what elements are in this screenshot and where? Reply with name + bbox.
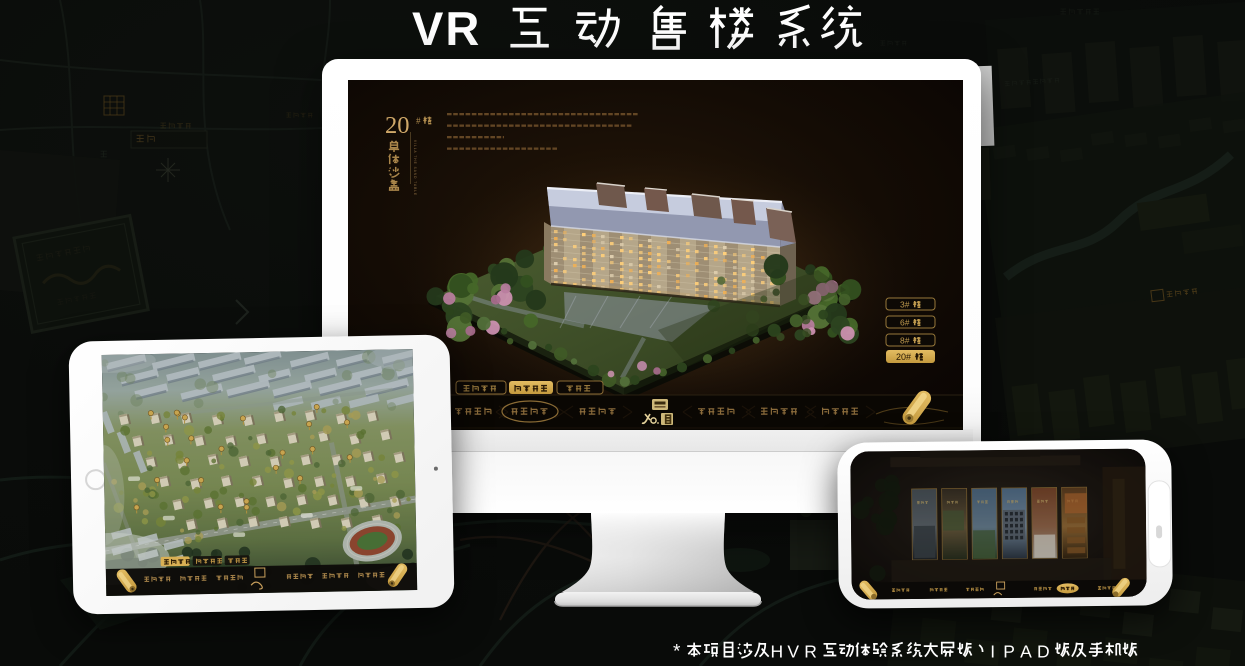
svg-text:3#: 3# <box>900 300 910 310</box>
svg-text:20#: 20# <box>896 352 911 362</box>
svg-text:A: A <box>1020 642 1032 662</box>
svg-text:H: H <box>771 642 784 662</box>
svg-text:D: D <box>1037 642 1050 662</box>
svg-text:8#: 8# <box>900 336 910 346</box>
svg-text:P: P <box>1003 642 1015 662</box>
svg-text:V: V <box>787 642 799 662</box>
svg-text:#: # <box>416 116 421 126</box>
svg-text:R: R <box>804 642 817 662</box>
svg-text:*: * <box>673 642 681 663</box>
svg-text:6#: 6# <box>900 318 910 328</box>
svg-text:I: I <box>990 642 995 662</box>
svg-text:20: 20 <box>385 112 410 139</box>
svg-text:VR: VR <box>412 2 481 55</box>
svg-text:VILLA THE SAND TABLE: VILLA THE SAND TABLE <box>413 140 417 196</box>
